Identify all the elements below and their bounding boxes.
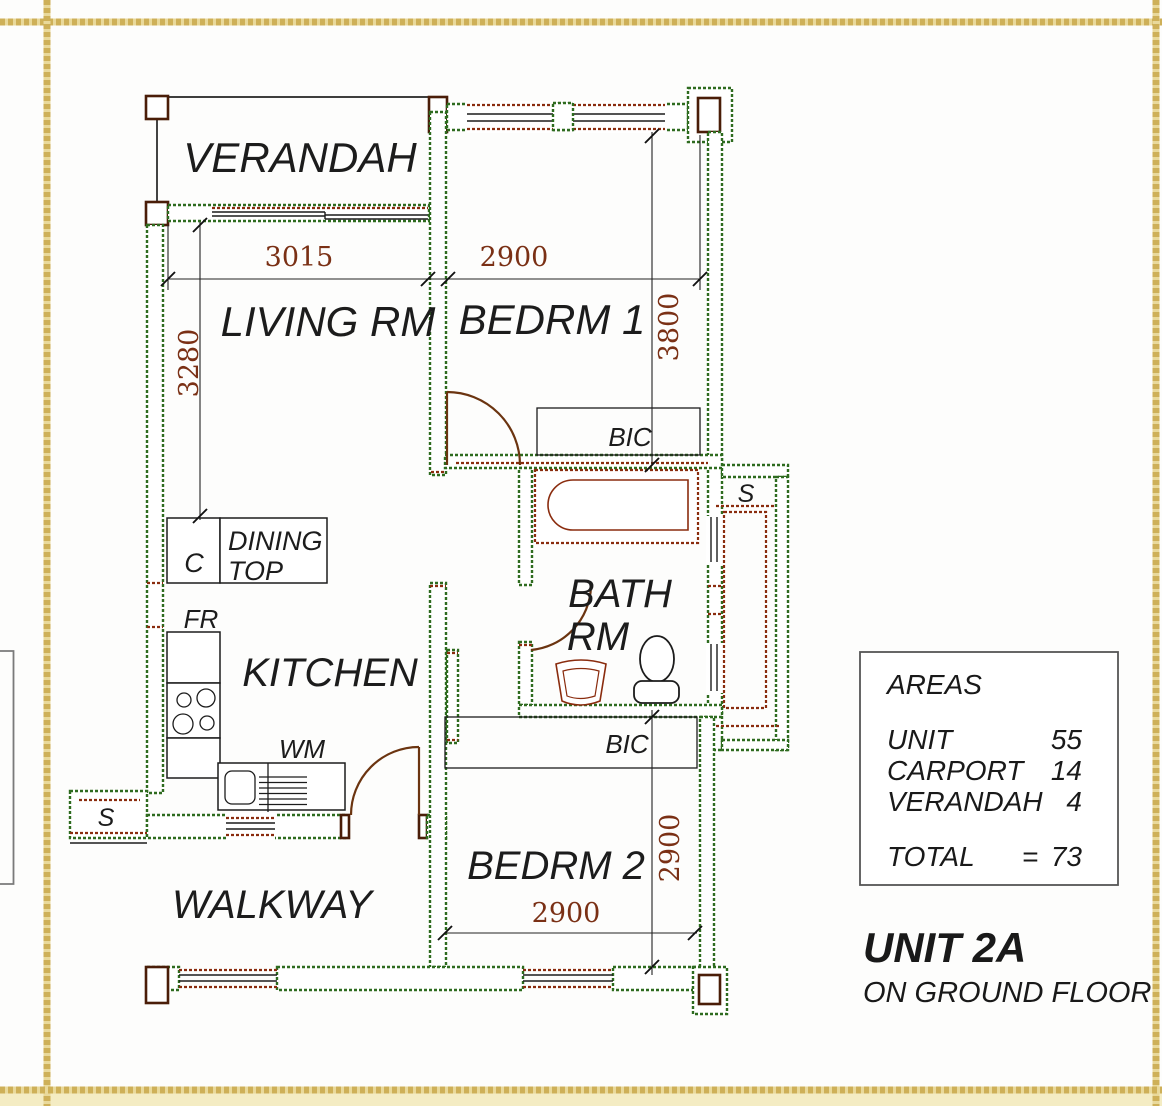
label-bath: BATH [568,572,672,616]
unit-title: UNIT 2A [863,924,1026,971]
corner-column-bottom-left [146,967,168,1003]
wash-basin [556,660,606,705]
areas-equals: = [1022,841,1038,872]
adjacent-unit-fragment [0,651,14,884]
areas-heading: AREAS [885,669,982,700]
bathtub [535,470,698,543]
stove [167,683,220,738]
floor-plan-page: 3015 2900 3280 3800 2900 2900 VERANDAH L… [0,0,1162,1106]
label-kitchen: KITCHEN [242,651,418,695]
corner-column-bottom-right [699,975,720,1004]
label-dining-line2: TOP [228,556,283,586]
dim-bedrm1-depth: 3800 [654,293,685,362]
areas-row-verandah-label: VERANDAH [887,786,1043,817]
verandah-post-bottom [146,202,168,225]
areas-row-carport-label: CARPORT [887,755,1025,786]
label-bic-bedrm2: BIC [605,729,649,759]
dim-bedrm1-width: 2900 [480,242,549,273]
label-store-shaft: S [738,480,755,508]
bedrm1-window-mullion [553,103,573,130]
title-block: UNIT 2A ON GROUND FLOOR [863,924,1151,1009]
dim-living-width: 3015 [265,242,334,273]
kitchen-door [351,747,419,815]
label-dining-line1: DINING [228,526,323,556]
label-bath-rm: RM [567,615,630,659]
areas-row-carport-value: 14 [1051,755,1082,786]
sink-unit [218,763,345,812]
areas-total-label: TOTAL [887,841,975,872]
label-washing-machine: WM [279,734,326,764]
label-bic-bedrm1: BIC [608,422,652,452]
areas-row-unit-value: 55 [1051,724,1083,755]
corner-column-top-right [698,98,720,132]
areas-row-verandah-value: 4 [1066,786,1082,817]
floor-label: ON GROUND FLOOR [863,977,1151,1009]
areas-row-unit-label: UNIT [887,724,954,755]
dim-bedrm2-depth: 2900 [655,814,686,883]
label-bedrm2: BEDRM 2 [467,844,645,888]
label-fridge: FR [184,604,219,634]
toilet [634,636,679,703]
label-walkway: WALKWAY [172,883,375,927]
label-store-left: S [98,804,115,832]
label-cupboard: C [184,548,204,578]
areas-panel: AREAS UNIT 55 CARPORT 14 VERANDAH 4 TOTA… [860,652,1118,885]
areas-total-value: 73 [1051,841,1083,872]
kitchen-door-jamb-left [341,815,349,838]
frame-bottom-band [0,1093,1162,1106]
dim-living-depth: 3280 [174,329,205,398]
bedrm2-window [523,975,613,981]
label-living-rm: LIVING RM [221,298,436,345]
verandah-post-top [146,96,168,119]
bic-bedrm2-box [445,717,697,768]
counter-box [167,632,220,683]
dim-bedrm2-width: 2900 [532,898,601,929]
counter-box-lower [167,738,220,778]
label-verandah: VERANDAH [183,134,417,181]
floor-plan-drawing: 3015 2900 3280 3800 2900 2900 VERANDAH L… [0,0,1162,1106]
walkway-window [179,975,277,981]
label-bedrm1: BEDRM 1 [459,296,646,343]
